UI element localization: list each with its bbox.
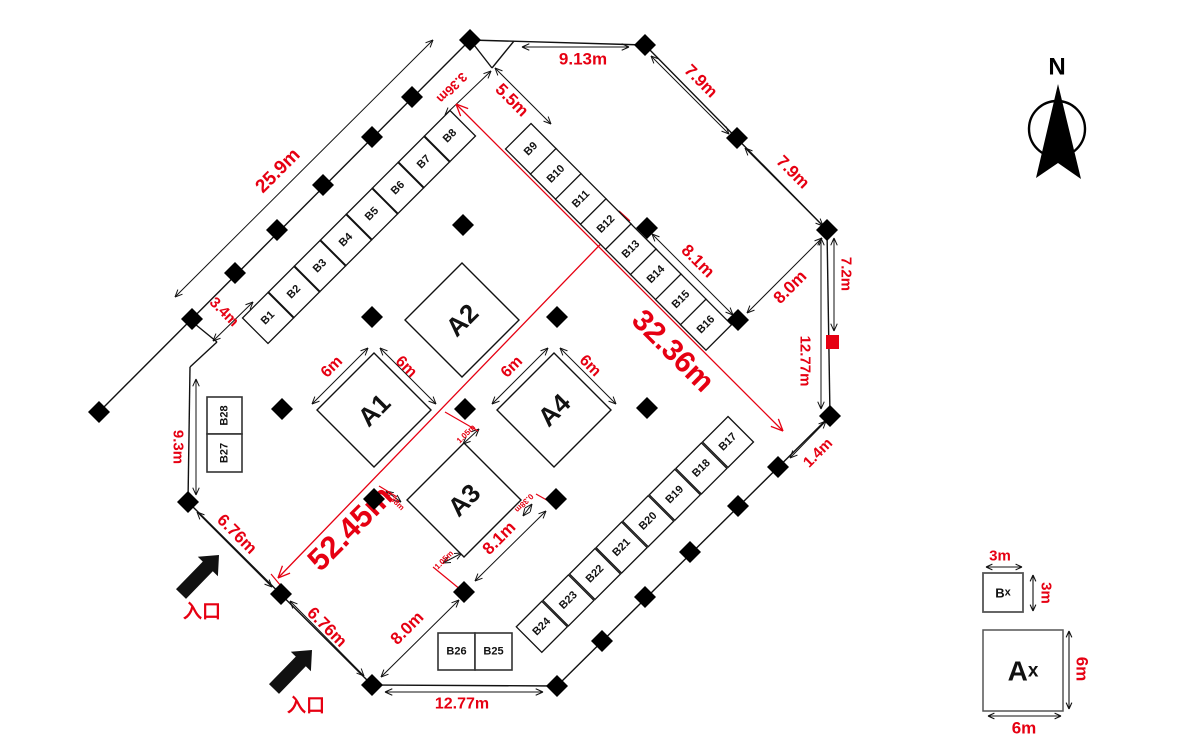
pillar-marker <box>679 541 701 563</box>
pillar-marker <box>266 219 288 241</box>
entrance-label: 入口 <box>183 601 221 623</box>
north-label: N <box>1048 54 1065 81</box>
pillar-marker <box>271 398 293 420</box>
booth-label: B27 <box>219 443 231 463</box>
red-marker <box>826 335 839 349</box>
north-arrow-icon <box>1036 84 1081 179</box>
pillar-marker <box>454 398 476 420</box>
dim-label: 6m <box>576 352 604 380</box>
pillar-marker <box>546 306 568 328</box>
dim-1-05m-25: 1.05m <box>433 549 462 571</box>
dim-label: 6m <box>318 353 346 381</box>
booth-b28: B28 <box>207 397 242 434</box>
dim-label: 7.2m <box>838 257 855 291</box>
dim-12-77m-10: 12.77m <box>797 238 825 409</box>
entrance-label: 入口 <box>287 695 325 717</box>
dim-9-3m-16: 9.3m <box>170 379 200 495</box>
legend-dim-label: 3m <box>1038 582 1055 604</box>
legend-label-main: A <box>1008 655 1028 686</box>
legend-label-sub: x <box>1005 587 1012 599</box>
legend-dim-label: 3m <box>989 548 1011 565</box>
dim-label: 8.1m <box>678 241 719 282</box>
dim-label: 12.77m <box>435 696 489 713</box>
booth-label: B26 <box>446 646 466 658</box>
wall-segment <box>470 40 645 45</box>
pillar-marker <box>361 126 383 148</box>
dimension-line <box>456 104 783 431</box>
legend-label-main: B <box>995 585 1004 600</box>
pillar-marker <box>312 174 334 196</box>
dim-label: 8.0m <box>387 608 428 649</box>
dim-7-9m-5: 7.9m <box>651 56 729 134</box>
plan-dimensions: 25.9m3.4m9.13m3.36m5.5m7.9m7.9m8.1m8.0m7… <box>170 40 855 713</box>
pillar-marker <box>634 586 656 608</box>
booth-b25: B25 <box>475 633 512 670</box>
booth-b27: B27 <box>207 434 242 472</box>
dim-1-4m-11: 1.4m <box>790 421 836 471</box>
dim-label: 7.9m <box>681 61 722 102</box>
site-plan: 25.9m3.4m9.13m3.36m5.5m7.9m7.9m8.1m8.0m7… <box>0 0 1200 751</box>
dim-8-0m-8: 8.0m <box>747 238 822 313</box>
dim-3-36m-3: 3.36m <box>434 70 491 115</box>
entrance-0: 入口 <box>176 555 221 623</box>
legend-box-label: Bx <box>995 585 1011 600</box>
red-tick <box>433 567 461 590</box>
pillar-marker <box>452 214 474 236</box>
booth-a2: A2 <box>405 263 519 377</box>
entrance-1: 入口 <box>269 650 325 717</box>
dim-label: 5.5m <box>492 80 533 121</box>
dim-label: 12.77m <box>797 336 814 387</box>
pillar-marker <box>224 262 246 284</box>
booth-label: B25 <box>483 646 503 658</box>
entrance-arrow-icon <box>176 555 219 599</box>
dim-label: 3.36m <box>434 70 471 107</box>
floor-plan-svg: 25.9m3.4m9.13m3.36m5.5m7.9m7.9m8.1m8.0m7… <box>0 0 1200 751</box>
dim-label: 6m <box>498 353 526 381</box>
legend-dim-label: 6m <box>1012 719 1037 738</box>
dim-label: 9.3m <box>170 430 187 464</box>
pillar-marker <box>636 397 658 419</box>
pillar-marker <box>545 488 567 510</box>
dim-label: 1.05m <box>433 549 455 571</box>
dim-7-2m-9: 7.2m <box>831 238 855 331</box>
legend-booth-sample-b: Bx3m3m <box>983 548 1055 613</box>
pillar-marker <box>361 306 383 328</box>
red-dim-label: 52.45m <box>300 478 399 577</box>
legend: Bx3m3mAx6m6m <box>983 548 1092 738</box>
dim-9-13m-2: 9.13m <box>522 44 629 69</box>
pillar-marker <box>401 86 423 108</box>
entrances: 入口入口 <box>176 555 325 717</box>
booth-label: B28 <box>219 405 231 425</box>
dim-label: 8.0m <box>770 267 811 308</box>
booth-b26: B26 <box>438 633 475 670</box>
dim-5-5m-4: 5.5m <box>492 68 551 124</box>
plan-booths: B1B2B3B4B5B6B7B8B9B10B11B12B13B14B15B16B… <box>207 111 754 671</box>
dim-12-77m-12: 12.77m <box>385 689 543 713</box>
legend-booth-sample-a: Ax6m6m <box>983 630 1092 738</box>
dim-1-05m-22: 1.05m <box>455 423 479 445</box>
wall-segment <box>372 685 557 686</box>
dim-label: 7.9m <box>773 152 814 193</box>
legend-label-sub: x <box>1028 660 1039 681</box>
wall-segment <box>827 230 830 416</box>
north-compass: N <box>1029 54 1085 180</box>
dim-7-9m-6: 7.9m <box>745 148 823 226</box>
entrance-arrow-icon <box>269 650 312 694</box>
legend-dim-label: 6m <box>1073 657 1092 682</box>
dim-label: 25.9m <box>252 145 305 198</box>
dim-label: 9.13m <box>559 50 607 69</box>
pillar-marker <box>453 581 475 603</box>
red-dim-32-36m-0: 32.36m <box>456 104 783 431</box>
dim-label: 6.76m <box>303 603 351 651</box>
wall-segment <box>188 367 190 502</box>
wall-segment <box>190 342 217 367</box>
dim-label: 3.4m <box>206 294 242 330</box>
wall-segment <box>492 41 514 68</box>
